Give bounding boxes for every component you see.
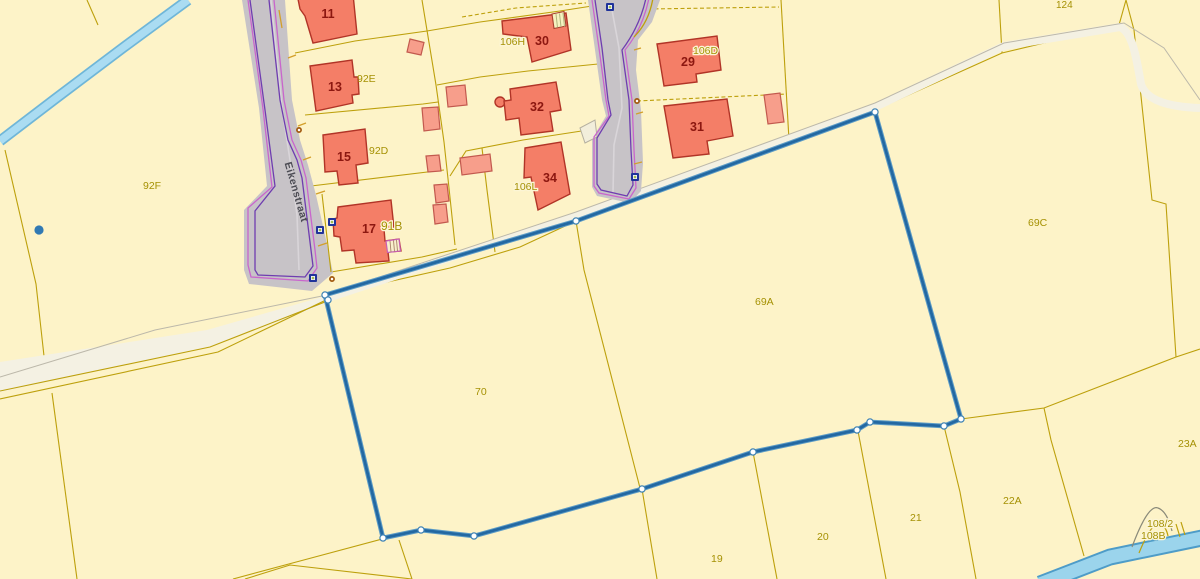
svg-text:32: 32 [530, 100, 544, 114]
svg-text:22A: 22A [1003, 495, 1022, 507]
svg-text:20: 20 [817, 531, 829, 543]
svg-text:108B: 108B [1141, 530, 1166, 542]
svg-text:106D: 106D [693, 45, 719, 57]
svg-text:69C: 69C [1028, 217, 1048, 229]
svg-text:70: 70 [475, 386, 487, 398]
svg-text:124: 124 [1056, 0, 1073, 11]
svg-text:92F: 92F [143, 180, 161, 192]
svg-text:11: 11 [321, 7, 334, 21]
svg-text:30: 30 [535, 34, 549, 48]
svg-text:106H: 106H [500, 36, 525, 48]
svg-text:92D: 92D [369, 145, 389, 157]
svg-text:92E: 92E [357, 73, 376, 85]
svg-text:34: 34 [543, 171, 557, 185]
svg-text:19: 19 [711, 553, 723, 565]
svg-text:91B: 91B [381, 219, 402, 233]
svg-text:21: 21 [910, 512, 922, 524]
svg-text:29: 29 [681, 55, 695, 69]
svg-text:15: 15 [337, 150, 351, 164]
svg-text:23A: 23A [1178, 438, 1197, 450]
svg-text:108/2: 108/2 [1147, 518, 1173, 530]
svg-text:106L: 106L [514, 181, 538, 193]
svg-text:31: 31 [690, 120, 704, 134]
svg-text:13: 13 [328, 80, 342, 94]
svg-text:17: 17 [362, 222, 376, 236]
svg-text:69A: 69A [755, 296, 774, 308]
